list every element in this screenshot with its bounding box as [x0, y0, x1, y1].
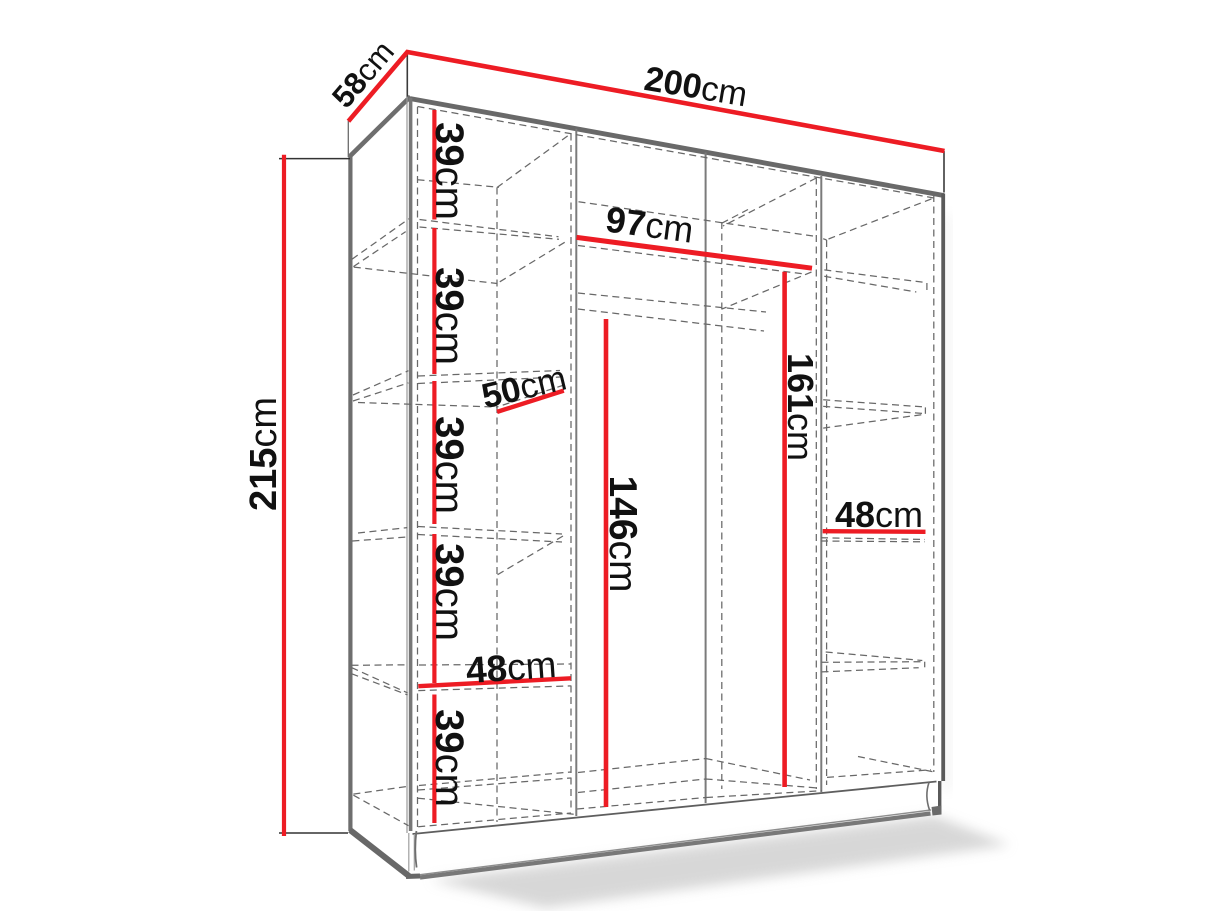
svg-text:39cm: 39cm [427, 122, 471, 220]
svg-text:48cm: 48cm [835, 494, 923, 535]
svg-text:39cm: 39cm [427, 267, 471, 365]
svg-text:39cm: 39cm [427, 709, 471, 807]
svg-text:39cm: 39cm [427, 543, 471, 641]
svg-text:146cm: 146cm [601, 475, 644, 592]
svg-text:48cm: 48cm [465, 644, 558, 691]
svg-text:39cm: 39cm [427, 416, 471, 514]
svg-text:161cm: 161cm [780, 353, 821, 461]
svg-text:215cm: 215cm [243, 397, 285, 511]
